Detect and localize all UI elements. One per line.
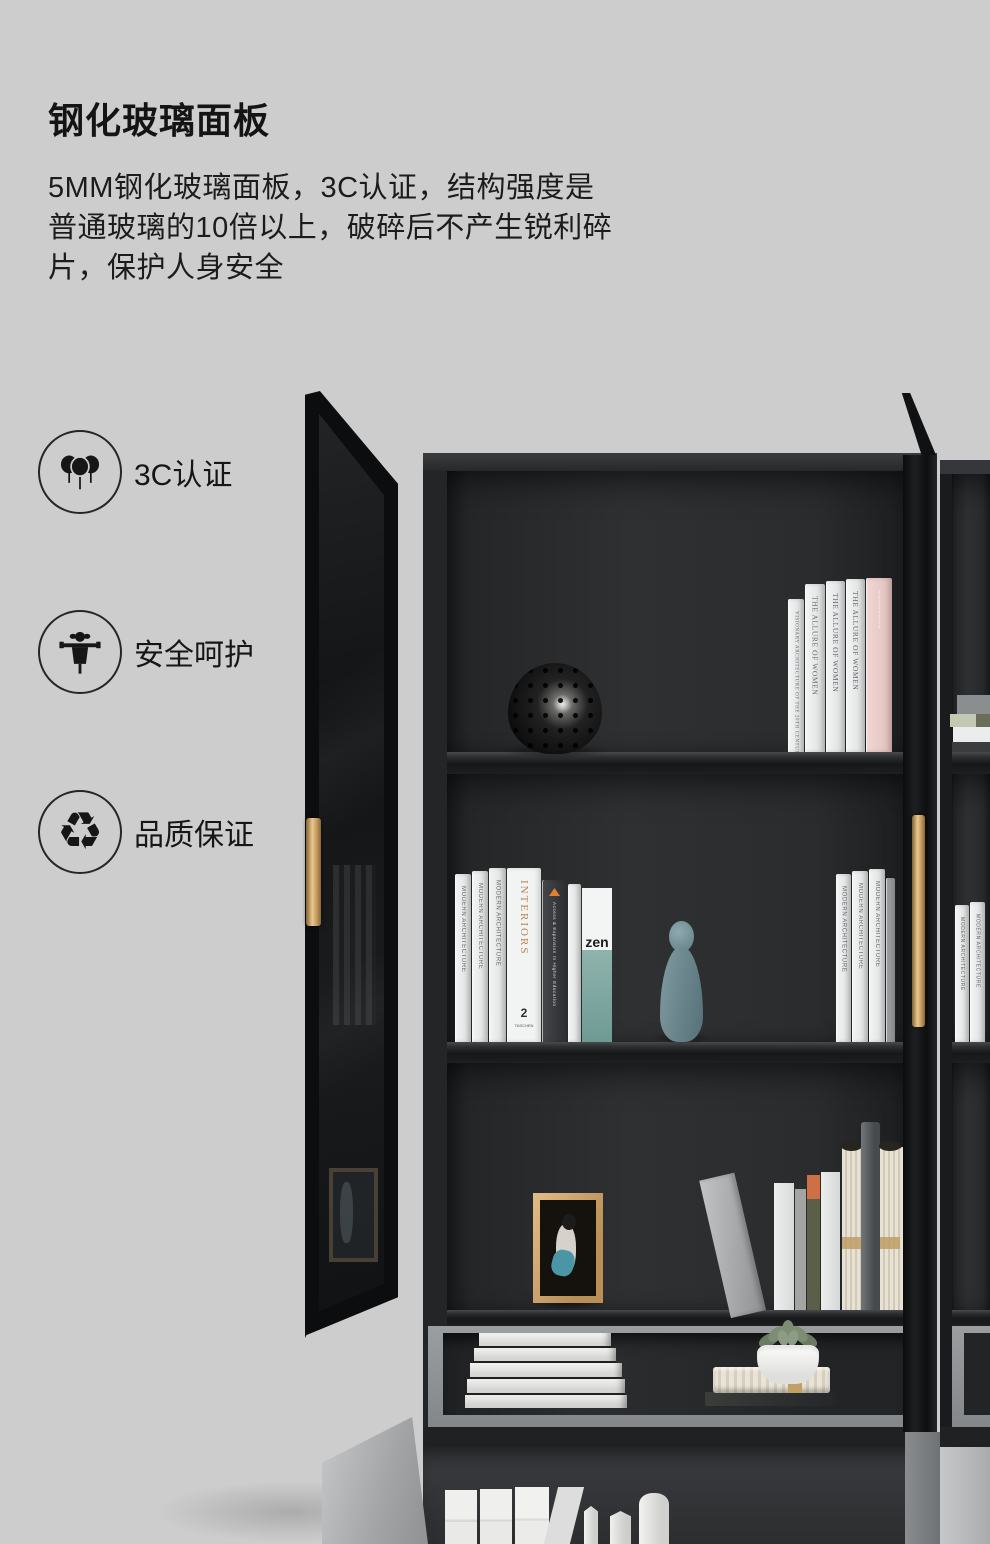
file-box xyxy=(445,1490,477,1544)
stacked-book xyxy=(467,1379,625,1395)
product-detail-image: 钢化玻璃面板 5MM钢化玻璃面板，3C认证，结构强度是 普通玻璃的10倍以上，破… xyxy=(0,0,990,1544)
right-divider xyxy=(940,1427,990,1447)
scarecrow-safety-icon xyxy=(38,610,122,694)
book-spine-allure: THE ALLURE OF WOMEN xyxy=(805,584,825,752)
zen-cover-top: zen xyxy=(582,888,612,950)
right-lower-door-edge xyxy=(905,1432,940,1544)
feature-label-quality: 品质保证 xyxy=(134,790,254,874)
olive-book-orange-top xyxy=(807,1175,820,1199)
taschen-label: TASCHEN xyxy=(507,1023,541,1028)
dark-book-under-pot xyxy=(705,1392,837,1406)
page-title: 钢化玻璃面板 xyxy=(48,92,270,144)
candle xyxy=(584,1506,598,1544)
book-spine-modern: MODERN ARCHITECTURE xyxy=(489,868,506,1042)
right-stacked-book xyxy=(952,742,990,752)
white-book xyxy=(774,1183,794,1310)
scroll-band xyxy=(880,1237,900,1249)
candle xyxy=(610,1511,631,1544)
feature-label-3c: 3C认证 xyxy=(134,430,232,514)
scroll-band xyxy=(842,1237,861,1249)
zen-title: zen xyxy=(585,934,608,950)
paper-scroll xyxy=(842,1145,861,1310)
right-shelf xyxy=(952,1042,990,1063)
book-spine-access: Access & Expansion In Higher Education xyxy=(542,880,567,1042)
candle xyxy=(639,1493,669,1544)
taschen-number: 2 xyxy=(507,1006,541,1020)
spine-arrow-top xyxy=(549,888,560,896)
book-spine-interiors: INTERIORS 2 TASCHEN xyxy=(507,868,541,1042)
right-compartment xyxy=(952,1063,990,1310)
frame-photo xyxy=(540,1200,596,1296)
teal-figurine xyxy=(658,921,705,1042)
ccc-balloons-glyph xyxy=(54,446,106,498)
dark-cylinder xyxy=(861,1122,880,1310)
stacked-book xyxy=(474,1348,616,1363)
stacked-book xyxy=(465,1395,627,1408)
book-spine-modern: MODERN ARCHITECTURE xyxy=(472,871,488,1042)
cabinet-shelf-3 xyxy=(447,1310,905,1326)
zen-cover-photo xyxy=(582,950,612,1042)
white-book xyxy=(821,1172,840,1310)
gold-picture-frame xyxy=(533,1193,603,1303)
recycle-icon: ♻ xyxy=(38,790,122,874)
perforated-vase xyxy=(508,663,602,754)
right-stacked-book xyxy=(953,727,990,742)
portrait-hair xyxy=(562,1214,576,1230)
olive-book xyxy=(807,1175,820,1310)
gray-book xyxy=(795,1189,806,1310)
book-spine-allure: THE ALLURE OF WOMEN xyxy=(826,581,845,752)
white-book-stack xyxy=(465,1333,630,1411)
right-cabinet-top-edge xyxy=(940,460,990,474)
scroll-cap xyxy=(841,1141,862,1151)
description-line-3: 片，保护人身安全 xyxy=(48,248,612,288)
file-box xyxy=(480,1489,512,1544)
right-door-gold-handle xyxy=(912,815,925,1027)
right-stacked-book xyxy=(957,695,990,714)
description-line-2: 普通玻璃的10倍以上，破碎后不产生锐利碎 xyxy=(48,208,612,248)
figurine-body xyxy=(660,946,703,1042)
file-box xyxy=(515,1487,549,1544)
book-spine-modern: MODERN ARCHITECTURE xyxy=(852,871,868,1042)
thin-white-book xyxy=(568,884,581,1042)
book-spine-visionary: VISIONARY ARCHITECTURE OF THE 20TH CENTU… xyxy=(788,599,804,752)
left-glass-door-open xyxy=(305,391,398,1338)
right-stacked-book xyxy=(950,714,976,727)
stacked-book xyxy=(470,1363,622,1379)
cabinet-shelf-2 xyxy=(447,1042,905,1063)
book-spine-modern: MODERN ARCHITECTURE xyxy=(970,902,985,1042)
recycle-glyph: ♻ xyxy=(57,806,104,858)
right-shelf xyxy=(952,752,990,774)
book-spine-allure: THE ALLURE OF WOMEN xyxy=(846,579,865,752)
feature-label-safety: 安全呵护 xyxy=(134,610,254,694)
gray-book-spine xyxy=(886,878,895,1042)
scroll-cap xyxy=(879,1141,901,1151)
right-niche-opening xyxy=(964,1333,990,1415)
zen-book-cover: zen xyxy=(582,888,612,1042)
pink-book-spine: ~~~~~~~~ xyxy=(866,578,892,752)
stacked-book xyxy=(479,1333,611,1348)
book-spine-modern: MODERN ARCHITECTURE xyxy=(869,869,885,1042)
cupboard-door-open xyxy=(322,1417,428,1544)
white-pot xyxy=(757,1345,819,1384)
paper-scroll xyxy=(880,1145,900,1310)
scarecrow-glyph xyxy=(54,626,106,678)
right-stacked-book xyxy=(976,714,990,727)
cupboard-divider xyxy=(423,1427,937,1447)
cabinet-top-edge xyxy=(423,453,937,471)
ccc-certification-icon xyxy=(38,430,122,514)
right-glass-door-top xyxy=(898,393,936,455)
book-spine-modern: MODERN ARCHITECTURE xyxy=(455,874,471,1042)
left-door-gold-handle xyxy=(306,818,321,926)
right-shelf xyxy=(952,1310,990,1326)
book-spine-modern: MODERN ARCHITECTURE xyxy=(955,905,969,1042)
right-cupboard-door xyxy=(940,1447,990,1544)
right-cabinet-stile xyxy=(940,474,952,1544)
description-paragraph: 5MM钢化玻璃面板，3C认证，结构强度是 普通玻璃的10倍以上，破碎后不产生锐利… xyxy=(48,168,612,288)
description-line-1: 5MM钢化玻璃面板，3C认证，结构强度是 xyxy=(48,168,612,208)
book-spine-modern: MODERN ARCHITECTURE xyxy=(836,874,851,1042)
leaning-books-group xyxy=(730,1105,905,1310)
